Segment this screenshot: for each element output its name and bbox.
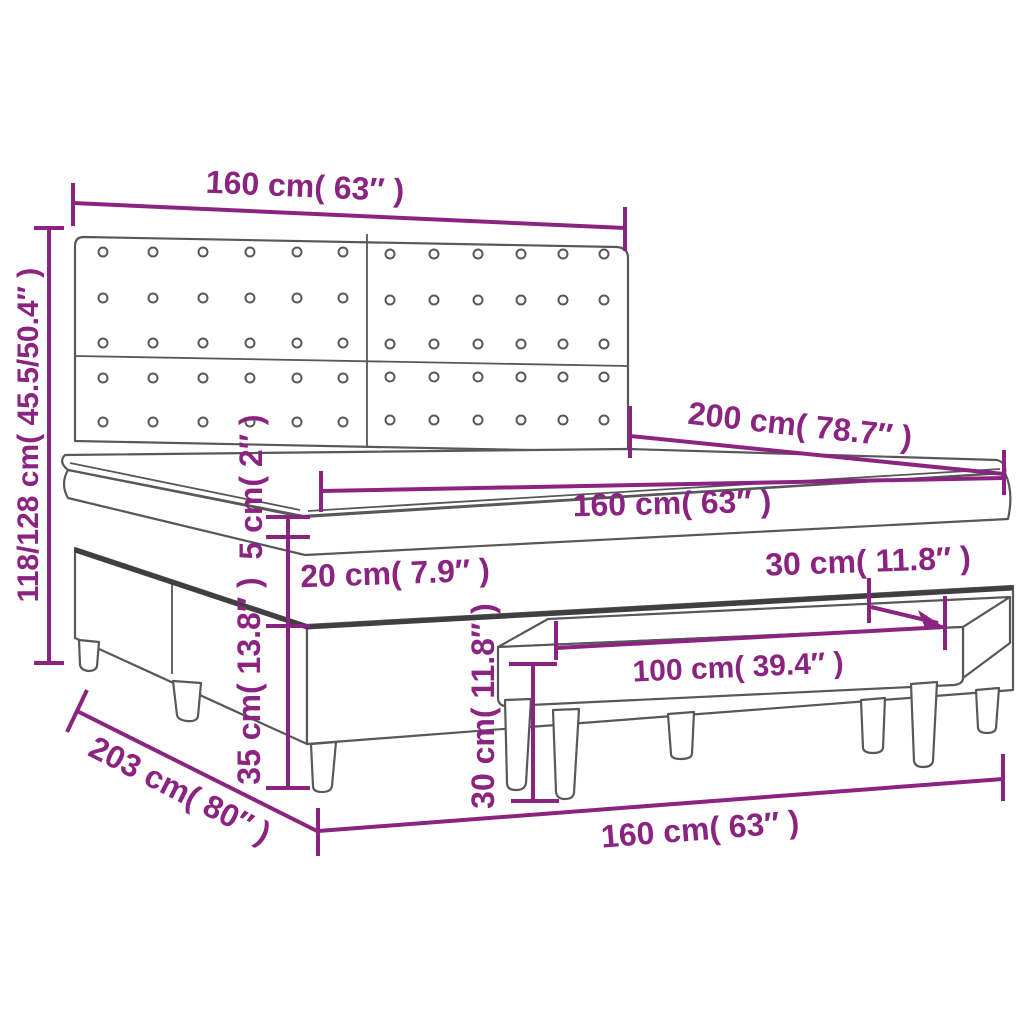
headboard-button xyxy=(430,296,439,305)
dimension-diagram: 160 cm( 63″ ) 118/128 cm( 45.5/50.4″ ) 2… xyxy=(0,0,1024,1024)
headboard-button xyxy=(517,296,526,305)
bed-width-bottom-label: 160 cm( 63″ ) xyxy=(600,803,801,854)
headboard-button xyxy=(474,250,483,259)
box-spring-leg-1 xyxy=(79,640,99,671)
headboard-button xyxy=(339,374,348,383)
headboard-button xyxy=(386,250,395,259)
headboard-button xyxy=(246,294,255,303)
headboard-button xyxy=(293,339,302,348)
topper-height-label: 5 cm( 2″ ) xyxy=(233,414,269,559)
headboard-button xyxy=(99,374,108,383)
headboard-button xyxy=(199,374,208,383)
bench-height-label: 30 cm( 11.8″ ) xyxy=(465,603,501,809)
headboard-button xyxy=(600,250,609,259)
headboard-button xyxy=(149,418,158,427)
bench-back-leg-left xyxy=(553,709,579,799)
headboard-button xyxy=(199,339,208,348)
box-spring-leg-2 xyxy=(173,681,201,721)
headboard-button xyxy=(430,373,439,382)
bed-diagram-canvas: 160 cm( 63″ ) 118/128 cm( 45.5/50.4″ ) 2… xyxy=(0,0,1024,1024)
headboard-button xyxy=(517,250,526,259)
headboard-button xyxy=(149,339,158,348)
headboard-button xyxy=(517,340,526,349)
dim-bed-width-bottom: 160 cm( 63″ ) xyxy=(318,754,1003,856)
headboard-button xyxy=(559,296,568,305)
dim-line xyxy=(73,203,625,228)
headboard-button xyxy=(474,340,483,349)
headboard-button xyxy=(474,296,483,305)
mattress-height-label: 20 cm( 7.9″ ) xyxy=(300,552,491,595)
mattress-width-label: 160 cm( 63″ ) xyxy=(572,483,771,523)
headboard-button xyxy=(149,374,158,383)
headboard-button xyxy=(293,418,302,427)
headboard-button xyxy=(600,340,609,349)
bed-height-label: 118/128 cm( 45.5/50.4″ ) xyxy=(12,268,45,603)
headboard-button xyxy=(386,416,395,425)
headboard-button xyxy=(430,416,439,425)
headboard-button xyxy=(99,339,108,348)
headboard-button xyxy=(246,374,255,383)
headboard-button xyxy=(339,248,348,257)
headboard-button xyxy=(559,250,568,259)
headboard-button xyxy=(600,373,609,382)
headboard-button xyxy=(517,416,526,425)
headboard-button xyxy=(339,339,348,348)
mattress-topper xyxy=(62,449,1010,555)
box-spring-height-label: 35 cm( 13.8″ ) xyxy=(231,577,267,784)
headboard-button xyxy=(517,373,526,382)
headboard-button xyxy=(293,248,302,257)
headboard-button xyxy=(246,248,255,257)
headboard-button xyxy=(99,248,108,257)
headboard-button xyxy=(293,374,302,383)
dim-cap xyxy=(67,690,87,732)
headboard-button xyxy=(99,418,108,427)
headboard-button xyxy=(430,250,439,259)
bench-back-leg-right xyxy=(976,688,999,733)
headboard-button xyxy=(246,339,255,348)
headboard-button xyxy=(600,296,609,305)
bench-front-leg-right xyxy=(911,682,937,767)
headboard xyxy=(75,234,628,452)
headboard-button xyxy=(474,416,483,425)
headboard-button xyxy=(386,340,395,349)
headboard-button xyxy=(600,416,609,425)
box-spring-leg-3 xyxy=(311,742,336,792)
headboard-button xyxy=(199,418,208,427)
headboard-button xyxy=(559,373,568,382)
headboard-button xyxy=(339,294,348,303)
headboard-button xyxy=(559,416,568,425)
headboard-button xyxy=(293,294,302,303)
bench-front-leg-left xyxy=(505,699,531,790)
headboard-button xyxy=(386,296,395,305)
headboard-button xyxy=(199,248,208,257)
headboard-button xyxy=(199,294,208,303)
headboard-button xyxy=(99,294,108,303)
headboard-button xyxy=(339,418,348,427)
bench-depth-label: 30 cm( 11.8″ ) xyxy=(765,539,972,582)
headboard-button xyxy=(430,340,439,349)
headboard-button xyxy=(474,373,483,382)
headboard-button xyxy=(149,248,158,257)
dim-bed-height: 118/128 cm( 45.5/50.4″ ) xyxy=(12,228,64,663)
box-spring-leg-5 xyxy=(861,698,885,753)
headboard-button xyxy=(386,373,395,382)
headboard-width-label: 160 cm( 63″ ) xyxy=(205,164,405,209)
box-spring-leg-4 xyxy=(668,712,694,759)
headboard-button xyxy=(559,340,568,349)
headboard-button xyxy=(149,294,158,303)
